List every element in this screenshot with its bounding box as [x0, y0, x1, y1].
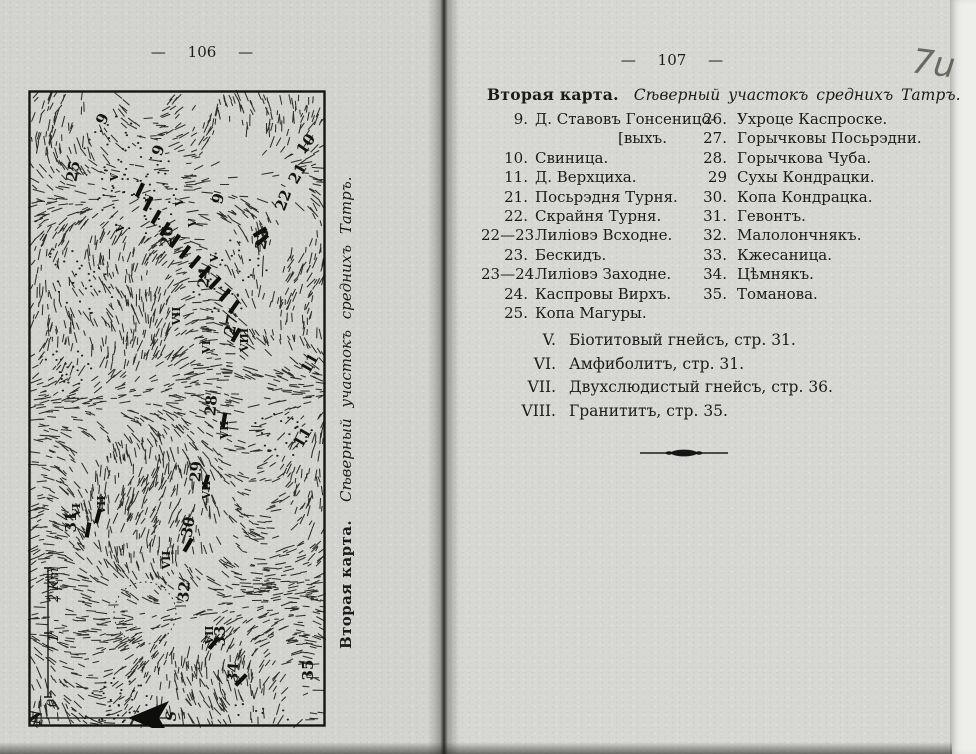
rock-type-item: V.Біотитовый гнейсъ, стр. 31. [502, 329, 833, 353]
legend-item: 35.Томанова. [700, 285, 955, 304]
legend-item: 11.Д. Верхциха. [481, 168, 703, 187]
legend-item-name: Д. Верхциха. [535, 168, 637, 186]
legend-item: 34.Цѣмнякъ. [700, 265, 955, 284]
map-rock-numeral: V [173, 197, 186, 207]
rock-type-item: VIII.Гранититъ, стр. 35. [502, 400, 833, 424]
legend-item: 22—23Лиліовэ Всходне. [481, 226, 703, 245]
legend-item-number: 31. [700, 207, 727, 226]
compass-north-label: N [28, 708, 44, 725]
legend-item-number: 25. [481, 304, 528, 323]
legend-column-left: 9.Д. Ставовъ Гонсеницо-[выхъ.10.Свиница.… [481, 110, 703, 323]
legend-item-number: 28. [700, 149, 727, 168]
legend-item-name: Каспровы Вирхъ. [535, 285, 671, 303]
rock-type-numeral: VI. [502, 353, 556, 377]
rock-type-item: VI.Амфиболитъ, стр. 31. [502, 353, 833, 377]
scale-label-1: 1 [47, 634, 62, 642]
legend-column-right: 26.Ухроце Каспроске.27.Горычковы Посьрэд… [700, 110, 955, 304]
rock-type-numeral: VII. [502, 376, 556, 400]
legend-item-number: 23—24 [481, 265, 528, 284]
rock-type-item: VII.Двухслюдистый гнейсъ, стр. 36. [502, 376, 833, 400]
legend-item-number: 21. [481, 188, 528, 207]
map-peak-number: 35 [299, 660, 317, 681]
legend-item-name: Ухроце Каспроске. [737, 110, 887, 128]
map-rock-numeral: V [114, 223, 127, 233]
north-arrow-icon [128, 701, 169, 728]
map-peak-number: 30 [177, 515, 198, 539]
map-peak-number: 11 [297, 350, 323, 377]
legend-item: 23.Бескидъ. [481, 246, 703, 265]
map-caption-subtitle: Сѣверный участокъ среднихъ Татръ. [337, 177, 355, 503]
map-rock-numeral: VII [170, 307, 183, 327]
legend-item-number: 22. [481, 207, 528, 226]
map-rock-numeral: V [108, 172, 121, 182]
divider-ornament-icon [638, 447, 730, 459]
legend-item-number: 11. [481, 168, 528, 187]
legend-item-name: Копа Магуры. [535, 304, 647, 322]
legend-item-number: 9. [481, 110, 528, 129]
rock-type-numeral: V. [502, 329, 556, 353]
legend-heading-title: Вторая карта. [487, 85, 619, 104]
legend-item-number: 10. [481, 149, 528, 168]
legend-item: 24.Каспровы Вирхъ. [481, 285, 703, 304]
map-rock-numeral: V [143, 193, 156, 203]
map-peak-number: 34 [223, 661, 243, 683]
map-peak-number: 29 [186, 460, 206, 482]
legend-item-name: Томанова. [737, 285, 818, 303]
legend-item-number: 30. [700, 188, 727, 207]
legend-item-name: Копа Кондрацка. [737, 188, 873, 206]
legend-item: 21.Посьрэдня Турня. [481, 188, 703, 207]
map-peak-number: 28 [201, 394, 221, 416]
legend-item-number: 29 [700, 168, 727, 187]
book-gutter-shadow [428, 0, 460, 754]
legend-item-number: 24. [481, 285, 528, 304]
legend-item-number: 33. [700, 246, 727, 265]
book-scan: — 106 — — 107 — 999251021222326242711281… [0, 0, 976, 754]
map-peak-number: 21 [285, 160, 311, 187]
map-peak-number: 24 [194, 266, 214, 288]
legend-item-number: 22—23 [481, 226, 528, 245]
map-peak-number: 9 [148, 142, 168, 158]
legend-item-number: 35. [700, 285, 727, 304]
legend-item: 31.Гевонтъ. [700, 207, 955, 226]
map-peak-number: 26 [157, 225, 177, 247]
legend-item-name: Лиліовэ Всходне. [535, 226, 672, 244]
rock-type-text: Амфиболитъ, стр. 31. [569, 355, 744, 373]
legend-item: 33.Кжесаница. [700, 246, 955, 265]
map-peak-number: 10 [293, 130, 320, 157]
map-rock-numeral: VII [218, 421, 231, 441]
map-peak-number: 25 [62, 159, 83, 183]
legend-item: 23—24Лиліовэ Заходне. [481, 265, 703, 284]
scale-label-2km: 2 Km [47, 568, 62, 603]
rock-type-text: Гранититъ, стр. 35. [569, 402, 728, 420]
handwritten-pencil-mark: 7u [910, 42, 958, 87]
rock-type-numeral: VIII. [502, 400, 556, 424]
legend-item: 29Сухы Кондрацки. [700, 168, 955, 187]
map-rock-numeral: VI [200, 340, 213, 355]
rock-type-list: V.Біотитовый гнейсъ, стр. 31.VI.Амфиболи… [502, 329, 833, 423]
legend-item-name: Лиліовэ Заходне. [535, 265, 671, 283]
map-rock-numeral: VII [95, 496, 108, 516]
legend-item-name: Горычкова Чуба. [737, 149, 871, 167]
legend-item-name: Горычковы Посьрэдни. [737, 129, 922, 147]
section-divider-ornament [638, 444, 730, 463]
hachure-map: 999251021222326242711281129313032333435V… [28, 90, 326, 728]
legend-heading-subtitle: Сѣверный участокъ среднихъ Татръ. [634, 86, 961, 104]
legend-item-number: 23. [481, 246, 528, 265]
legend-item-continuation: [выхъ. [481, 129, 703, 148]
legend-heading: Вторая карта.Сѣверный участокъ среднихъ … [487, 85, 957, 104]
legend-item-name: Кжесаница. [737, 246, 832, 264]
legend-item: 9.Д. Ставовъ Гонсеницо- [481, 110, 703, 129]
legend-item-name: Посьрэдня Турня. [535, 188, 678, 206]
scale-label-0: 0 [45, 699, 60, 707]
map-rock-numeral: V [208, 253, 221, 263]
legend-item: 27.Горычковы Посьрэдни. [700, 129, 955, 148]
legend-item-number: 34. [700, 265, 727, 284]
dashed-circle-mark [114, 582, 176, 644]
legend-item: 10.Свиница. [481, 149, 703, 168]
legend-item-name: Бескидъ. [535, 246, 606, 264]
legend-item-name: Скрайня Турня. [535, 207, 661, 225]
legend-item-name: Цѣмнякъ. [737, 265, 814, 283]
map-rock-numeral: VII [203, 626, 216, 646]
page-number-107: — 107 — [562, 51, 782, 69]
legend-item-name: Д. Ставовъ Гонсеницо- [535, 110, 716, 128]
map-caption-vertical: Вторая карта.Сѣверный участокъ среднихъ … [337, 93, 355, 649]
rock-type-text: Біотитовый гнейсъ, стр. 31. [569, 331, 796, 349]
map-peak-number: 9 [92, 110, 113, 127]
legend-item: 22.Скрайня Турня. [481, 207, 703, 226]
map-rock-numeral: VIII [238, 328, 251, 353]
legend-item-name: Сухы Кондрацки. [737, 168, 875, 186]
map-rock-numeral: V [186, 218, 199, 228]
legend-item-number: 27. [700, 129, 727, 148]
compass-south-label: S [164, 711, 180, 721]
map-peak-number: 22 [271, 187, 295, 213]
bottom-edge-shadow [0, 742, 952, 754]
legend-item-name: Свиница. [535, 149, 608, 167]
legend-item-number: 32. [700, 226, 727, 245]
legend-item: 30.Копа Кондрацка. [700, 188, 955, 207]
map-caption-title: Вторая карта. [337, 520, 355, 649]
legend-item-name: Малолончнякъ. [737, 226, 861, 244]
map-peak-number: 23 [251, 227, 272, 251]
map-peak-number: 11 [290, 424, 316, 451]
map-rock-numeral: VI [70, 503, 83, 518]
map-peak-number: 32 [174, 580, 194, 602]
legend-item: 32.Малолончнякъ. [700, 226, 955, 245]
map-rock-numeral: VII [160, 551, 173, 571]
page-number-106: — 106 — [92, 43, 312, 61]
map-rock-numeral: VII [200, 481, 213, 501]
legend-item: 25.Копа Магуры. [481, 304, 703, 323]
legend-item-name: Гевонтъ. [737, 207, 806, 225]
legend-item: 28.Горычкова Чуба. [700, 149, 955, 168]
legend-item: 26.Ухроце Каспроске. [700, 110, 955, 129]
legend-item-number: 26. [700, 110, 727, 129]
rock-type-text: Двухслюдистый гнейсъ, стр. 36. [569, 378, 833, 396]
map-peak-number: 9 [208, 191, 228, 206]
hachure-texture [28, 90, 326, 728]
